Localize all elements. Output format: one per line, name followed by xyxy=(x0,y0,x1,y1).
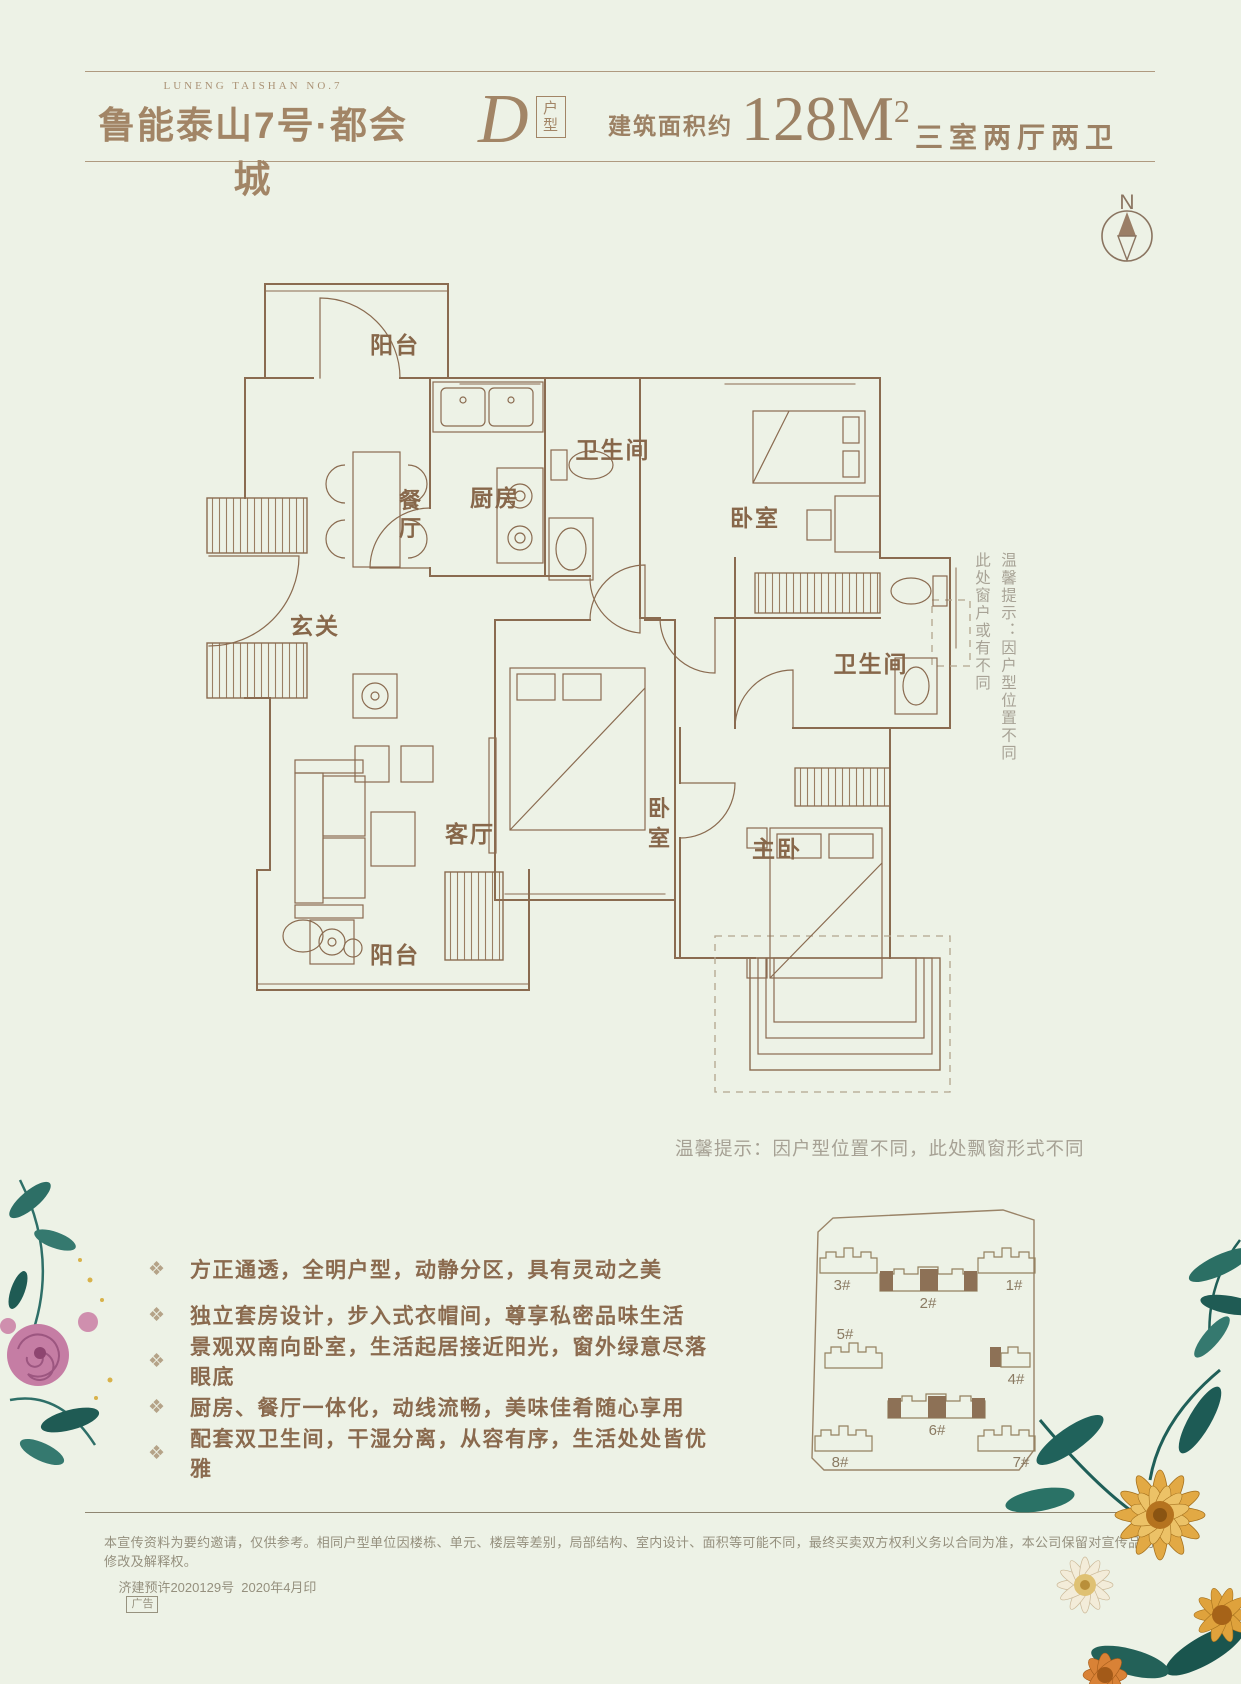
feature-list: ❖ 方正通透，全明户型，动静分区，具有灵动之美 ❖ 独立套房设计，步入式衣帽间，… xyxy=(148,1246,728,1476)
feature-text: 配套双卫生间，干湿分离，从容有序，生活处处皆优雅 xyxy=(190,1423,728,1483)
room-label-balcony-top: 阳台 xyxy=(370,332,420,358)
compass-needle-south xyxy=(1118,236,1136,260)
room-label-master: 主卧 xyxy=(752,836,802,862)
building-label-8: 8# xyxy=(832,1454,849,1471)
logo-chinese: 鲁能泰山7号·都会城 xyxy=(88,95,418,203)
feature-item: ❖ 方正通透，全明户型，动静分区，具有灵动之美 xyxy=(148,1246,728,1292)
footer-permit: 济建预许2020129号 2020年4月印 广告 xyxy=(104,1562,316,1628)
room-label-bedroom-2-char-2: 室 xyxy=(648,826,670,851)
room-label-balcony-bottom: 阳台 xyxy=(370,942,420,968)
feature-text: 独立套房设计，步入式衣帽间，尊享私密品味生活 xyxy=(190,1300,685,1330)
diamond-bullet-icon: ❖ xyxy=(148,1304,190,1327)
area-value: 128M xyxy=(741,86,894,152)
diamond-bullet-icon: ❖ xyxy=(148,1396,190,1419)
site-building-labels: 3# 2# 1# 5# 4# 6# 8# 7# xyxy=(832,1277,1030,1471)
room-label-bath-2: 卫生间 xyxy=(834,651,909,677)
room-label-entry: 玄关 xyxy=(290,613,340,639)
room-label-bedroom-1: 卧室 xyxy=(730,505,780,531)
unit-label-char-1: 户 xyxy=(539,100,563,117)
chrysanthemum-leaves-icon xyxy=(1004,1370,1241,1684)
logo-english: LUNENG TAISHAN NO.7 xyxy=(88,80,418,92)
room-label-living: 客厅 xyxy=(445,821,495,847)
area-block: 建筑面积约 128M 2 xyxy=(608,86,910,152)
unit-letter: D xyxy=(478,82,529,158)
compass-icon: N xyxy=(1094,182,1164,272)
rooms-spec: 三室两厅两卫 xyxy=(915,116,1119,156)
room-label-bedroom-2-char-1: 卧 xyxy=(648,796,670,821)
site-plan: 3# 2# 1# 5# 4# 6# 8# 7# xyxy=(738,1118,1038,1498)
header-top-rule xyxy=(85,71,1155,72)
feature-text: 景观双南向卧室，生活起居接近阳光，窗外绿意尽落眼底 xyxy=(190,1331,728,1391)
compass-needle-north xyxy=(1118,212,1136,236)
plan-furniture xyxy=(283,382,947,978)
room-label-dining-char-1: 餐 xyxy=(399,488,422,513)
building-label-5: 5# xyxy=(837,1326,854,1343)
room-label-bath-1: 卫生间 xyxy=(576,437,651,463)
floor-plan: 阳台 餐 厅 厨房 卫生间 卧室 玄关 客厅 卧 室 主卧 卫生间 阳台 xyxy=(195,268,975,1108)
feature-text: 方正通透，全明户型，动静分区，具有灵动之美 xyxy=(190,1254,663,1284)
building-label-1: 1# xyxy=(1006,1277,1023,1294)
diamond-bullet-icon: ❖ xyxy=(148,1442,190,1465)
plan-room-labels: 阳台 餐 厅 厨房 卫生间 卧室 玄关 客厅 卧 室 主卧 卫生间 阳台 xyxy=(290,332,909,968)
side-leaves-illustration xyxy=(1150,1235,1241,1355)
unit-label-char-2: 型 xyxy=(539,117,563,134)
building-label-2: 2# xyxy=(920,1295,937,1312)
building-label-3: 3# xyxy=(834,1277,851,1294)
window-hint-col-1: 温馨提示：因户型位置不同 xyxy=(999,552,1016,762)
leaf-icon xyxy=(1199,1291,1241,1319)
area-prefix: 建筑面积约 xyxy=(608,107,733,152)
window-hint-col-2: 此处窗户或有不同 xyxy=(973,552,990,692)
window-hint-vertical-note: 温馨提示：因户型位置不同 此处窗户或有不同 xyxy=(968,552,1020,782)
permit-text: 济建预许2020129号 2020年4月印 xyxy=(118,1580,316,1595)
building-label-6: 6# xyxy=(929,1422,946,1439)
feature-item: ❖ 配套双卫生间，干湿分离，从容有序，生活处处皆优雅 xyxy=(148,1430,728,1476)
rose-flower-icon xyxy=(0,1312,98,1386)
chrysanthemum-illustration xyxy=(1010,1360,1241,1684)
ad-tag-badge: 广告 xyxy=(126,1596,158,1613)
area-superscript: 2 xyxy=(894,96,910,152)
footer-rule xyxy=(85,1512,1155,1513)
plan-walls xyxy=(207,284,956,1070)
feature-text: 厨房、餐厅一体化，动线流畅，美味佳肴随心享用 xyxy=(190,1392,685,1422)
room-label-kitchen: 厨房 xyxy=(470,485,520,511)
leaf-icon xyxy=(1189,1312,1235,1362)
feature-item: ❖ 景观双南向卧室，生活起居接近阳光，窗外绿意尽落眼底 xyxy=(148,1338,728,1384)
unit-type-block: D 户 型 xyxy=(478,82,566,158)
rose-illustration xyxy=(0,1140,150,1490)
diamond-bullet-icon: ❖ xyxy=(148,1258,190,1281)
project-logo: LUNENG TAISHAN NO.7 鲁能泰山7号·都会城 xyxy=(88,80,418,203)
diamond-bullet-icon: ❖ xyxy=(148,1350,190,1373)
flyer-page: LUNENG TAISHAN NO.7 鲁能泰山7号·都会城 D 户 型 建筑面… xyxy=(0,0,1241,1684)
room-label-dining-char-2: 厅 xyxy=(399,516,421,541)
gold-chrysanthemum-icon xyxy=(1115,1470,1205,1560)
white-daisy-icon xyxy=(1057,1557,1113,1613)
unit-label-box: 户 型 xyxy=(536,96,566,138)
